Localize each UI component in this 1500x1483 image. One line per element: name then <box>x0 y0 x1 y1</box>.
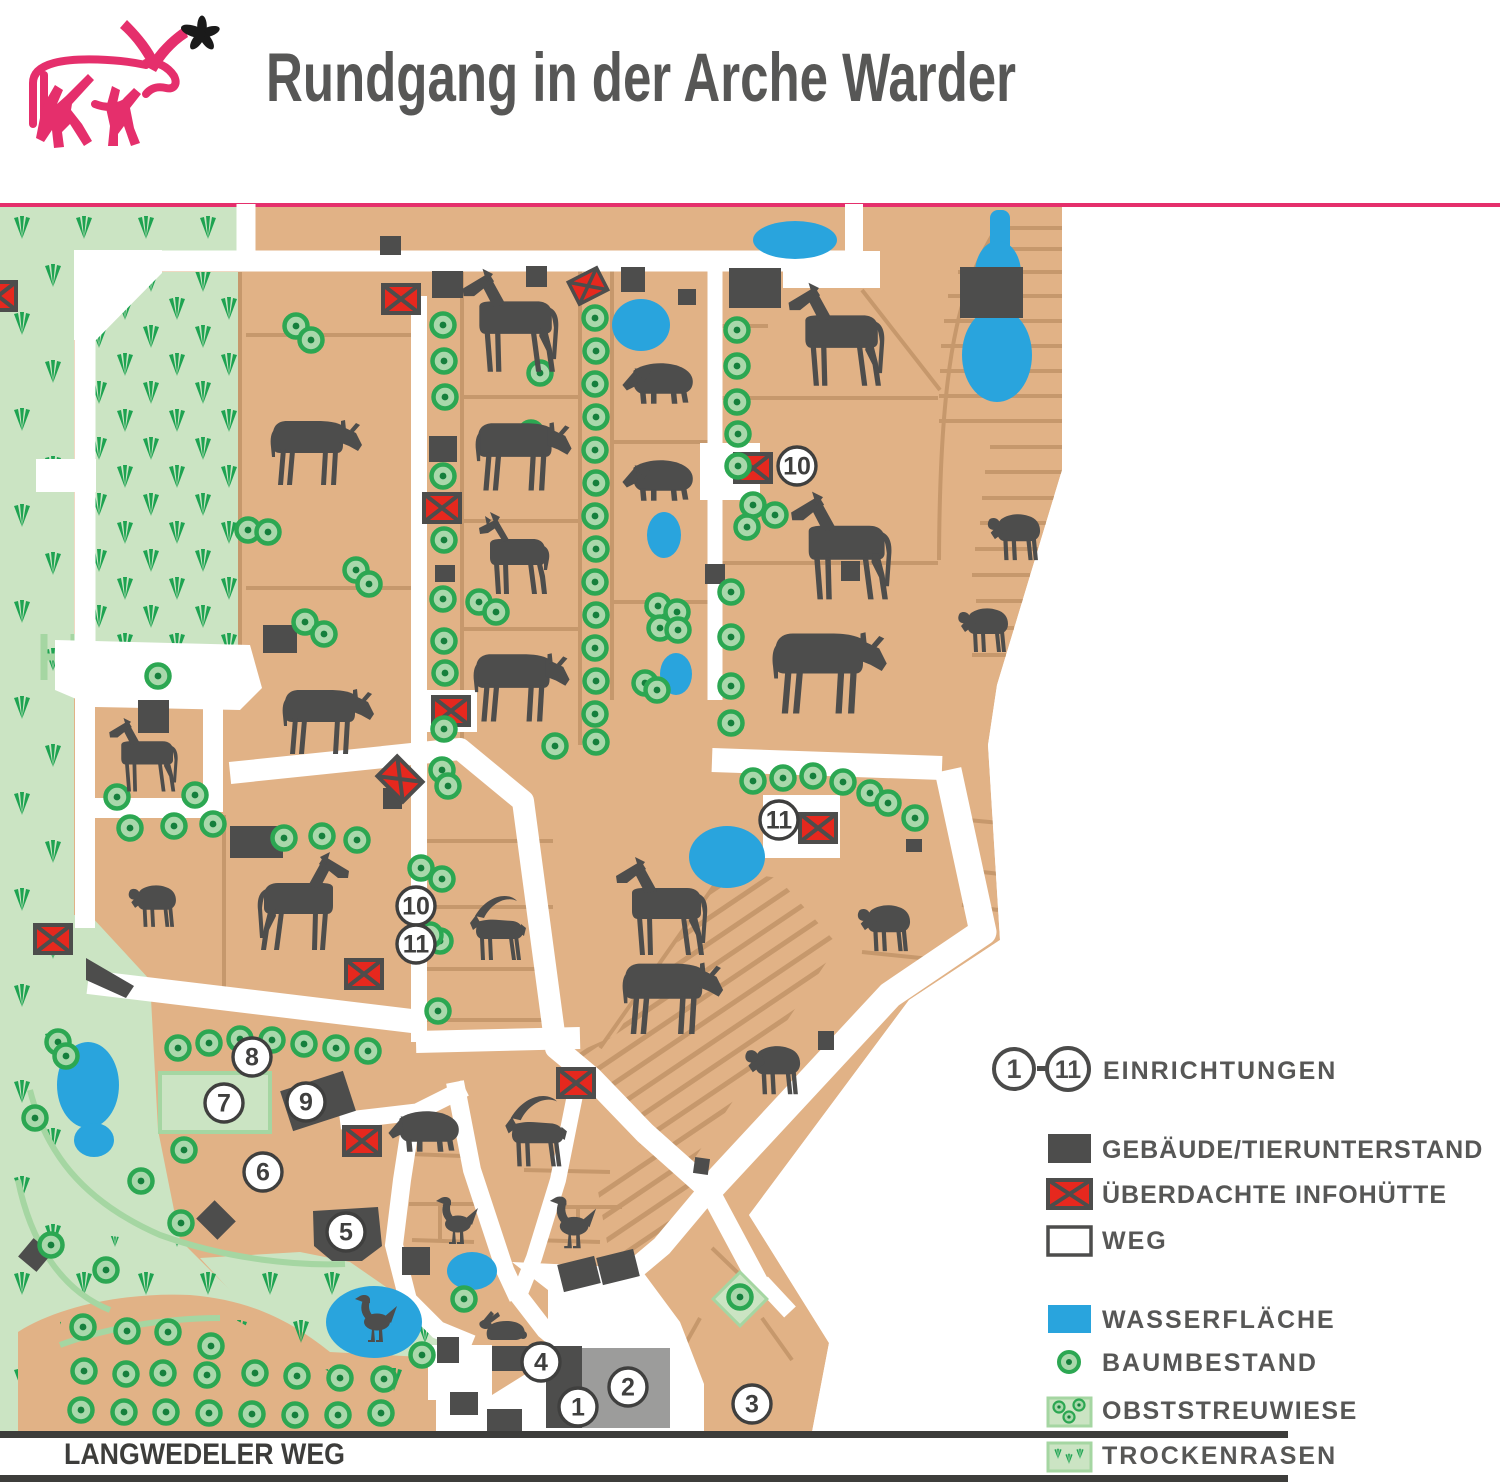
svg-text:WEG: WEG <box>1102 1227 1168 1255</box>
svg-text:11: 11 <box>1055 1056 1082 1084</box>
svg-text:LANGWEDELER WEG: LANGWEDELER WEG <box>64 1438 345 1471</box>
svg-text:10: 10 <box>783 453 811 481</box>
svg-text:2: 2 <box>621 1374 635 1402</box>
svg-text:1: 1 <box>571 1394 585 1422</box>
svg-text:EINRICHTUNGEN: EINRICHTUNGEN <box>1103 1057 1337 1085</box>
svg-text:8: 8 <box>245 1044 259 1072</box>
svg-text:OBSTSTREUWIESE: OBSTSTREUWIESE <box>1102 1397 1358 1425</box>
svg-text:11: 11 <box>766 807 793 835</box>
svg-text:BAUMBESTAND: BAUMBESTAND <box>1102 1349 1318 1377</box>
svg-text:3: 3 <box>745 1391 759 1419</box>
svg-text:9: 9 <box>299 1089 313 1117</box>
svg-text:11: 11 <box>403 931 430 959</box>
svg-text:ÜBERDACHTE INFOHÜTTE: ÜBERDACHTE INFOHÜTTE <box>1102 1180 1447 1209</box>
svg-text:4: 4 <box>534 1349 548 1377</box>
svg-text:WASSERFLÄCHE: WASSERFLÄCHE <box>1102 1306 1336 1334</box>
svg-text:7: 7 <box>217 1090 231 1118</box>
svg-text:Rundgang in der Arche Warder: Rundgang in der Arche Warder <box>266 39 1016 116</box>
svg-text:6: 6 <box>256 1159 270 1187</box>
svg-text:5: 5 <box>339 1219 353 1247</box>
svg-text:1: 1 <box>1006 1054 1021 1084</box>
svg-text:GEBÄUDE/TIERUNTERSTAND: GEBÄUDE/TIERUNTERSTAND <box>1102 1136 1483 1164</box>
svg-text:10: 10 <box>402 893 430 921</box>
svg-text:TROCKENRASEN: TROCKENRASEN <box>1102 1442 1337 1470</box>
